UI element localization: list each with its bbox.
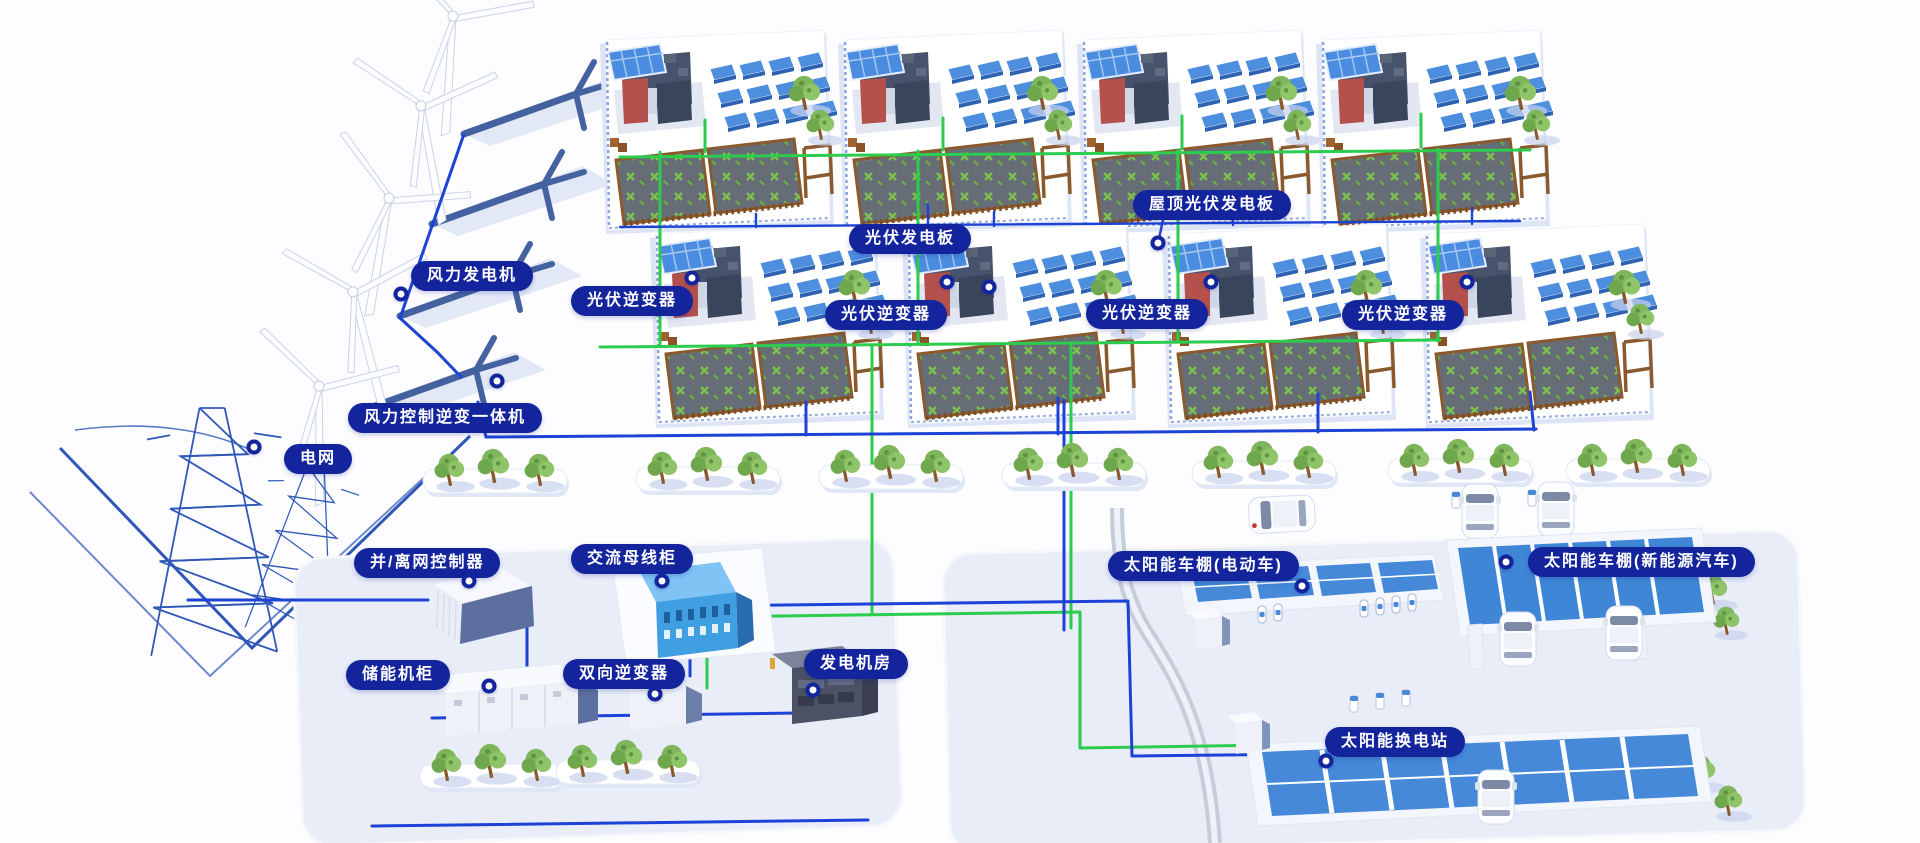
callout-pv-inverter-4: 光伏逆变器 — [1342, 300, 1464, 330]
connector-dot — [685, 271, 700, 286]
connector-dot — [394, 287, 409, 302]
connector-dot — [1319, 754, 1334, 769]
callout-pv-inverter-2: 光伏逆变器 — [825, 300, 947, 330]
callout-solar-carport-ev: 太阳能车棚(电动车) — [1108, 551, 1299, 581]
connector-dot — [1295, 579, 1310, 594]
connector-dot — [462, 574, 477, 589]
callout-solar-carport-nev: 太阳能车棚(新能源汽车) — [1528, 547, 1755, 577]
connector-dot — [1460, 275, 1475, 290]
callout-layer: 风力发电机风力控制逆变一体机电网并/离网控制器交流母线柜储能机柜双向逆变器发电机… — [0, 0, 1920, 843]
connector-dot — [655, 574, 670, 589]
connector-dot — [1151, 236, 1166, 251]
callout-rooftop-pv-panel: 屋顶光伏发电板 — [1133, 190, 1291, 220]
smart-energy-microgrid-diagram: 风力发电机风力控制逆变一体机电网并/离网控制器交流母线柜储能机柜双向逆变器发电机… — [0, 0, 1920, 843]
callout-storage-cabinet: 储能机柜 — [346, 660, 450, 690]
connector-dot — [490, 374, 505, 389]
connector-dot — [982, 280, 997, 295]
callout-wind-turbine: 风力发电机 — [411, 261, 533, 291]
callout-pv-panel: 光伏发电板 — [849, 224, 971, 254]
callout-ac-busbar-cabinet: 交流母线柜 — [571, 544, 693, 574]
callout-bidirectional-inverter: 双向逆变器 — [563, 659, 685, 689]
callout-power-grid: 电网 — [284, 444, 352, 474]
callout-pv-inverter-3: 光伏逆变器 — [1086, 299, 1208, 329]
connector-dot — [940, 275, 955, 290]
connector-dot — [806, 683, 821, 698]
connector-dot — [1499, 555, 1514, 570]
callout-wind-inverter-unit: 风力控制逆变一体机 — [348, 403, 542, 433]
callout-pv-inverter-1: 光伏逆变器 — [571, 286, 693, 316]
callout-solar-swap-station: 太阳能换电站 — [1325, 727, 1465, 757]
connector-dot — [247, 440, 262, 455]
callout-grid-controller: 并/离网控制器 — [354, 548, 500, 578]
callout-generator-room: 发电机房 — [804, 649, 908, 679]
connector-dot — [648, 687, 663, 702]
connector-dot — [482, 679, 497, 694]
connector-dot — [1204, 275, 1219, 290]
